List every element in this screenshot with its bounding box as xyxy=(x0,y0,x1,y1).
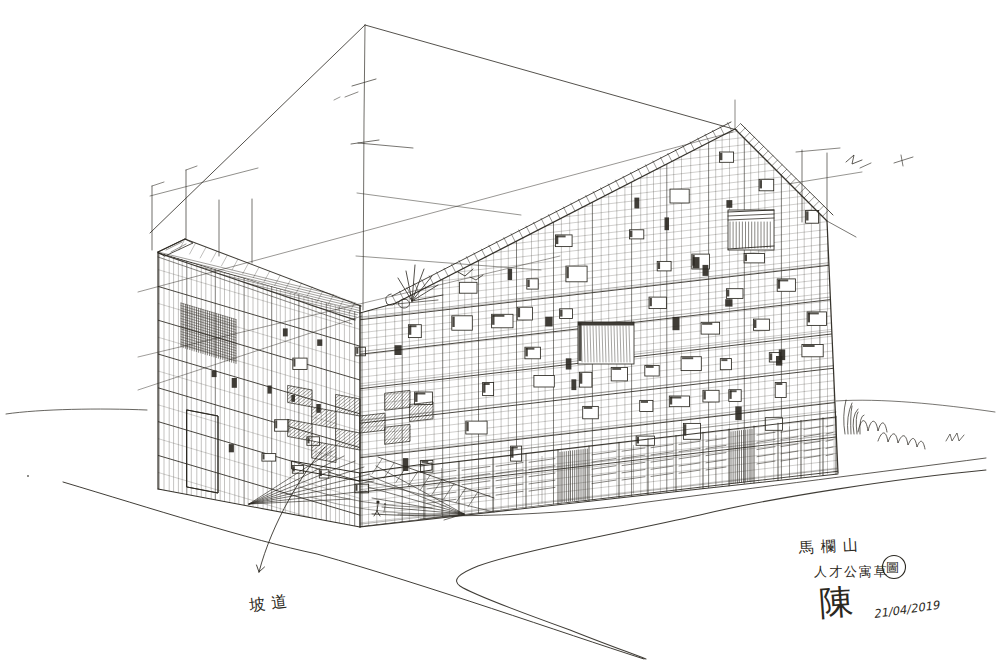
right-wing-windows xyxy=(395,152,827,472)
date-inscription: 21/04/2019 xyxy=(872,598,941,621)
architectural-sketch: 坡道 馬欄山 人才公寓草 圖 陳 21/04/2019 xyxy=(0,0,1000,672)
handwritten-note: 坡道 xyxy=(248,591,294,615)
sketch-canvas: 坡道 馬欄山 人才公寓草 圖 陳 21/04/2019 xyxy=(0,0,1000,672)
title-line-2: 人才公寓草 xyxy=(814,564,889,579)
title-line-2-circled-char: 圖 xyxy=(886,560,899,575)
artist-signature: 陳 xyxy=(818,581,855,623)
grass-scribbles xyxy=(844,400,964,449)
title-line-1: 馬欄山 xyxy=(797,536,865,557)
handwritten-annotations: 坡道 馬欄山 人才公寓草 圖 陳 21/04/2019 xyxy=(248,536,942,623)
